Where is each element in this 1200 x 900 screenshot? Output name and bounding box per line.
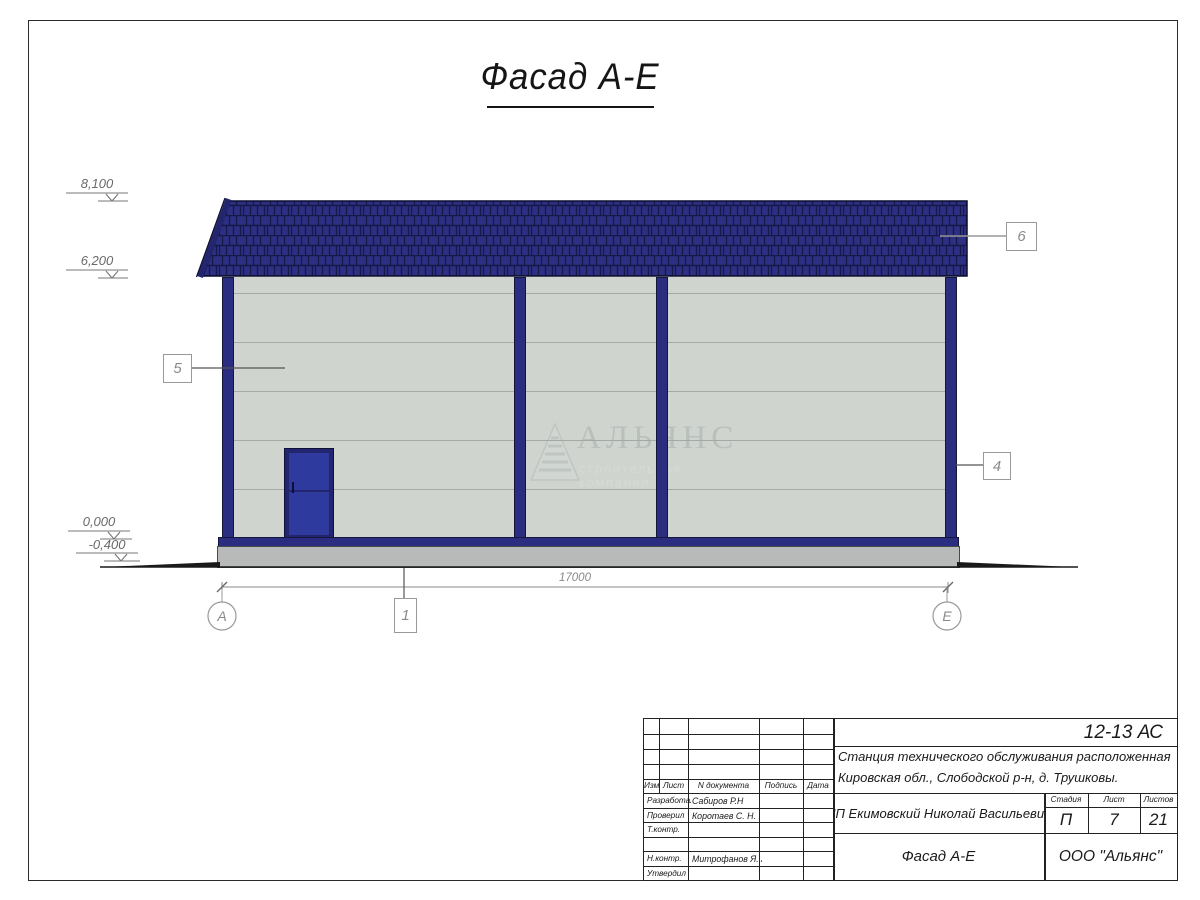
tb-col-doc: N документа <box>688 781 759 790</box>
callout-roof: 6 <box>1006 222 1037 251</box>
elevation-mark-zero: 0,000 <box>70 514 128 529</box>
axis-bubble-a: А <box>211 605 233 627</box>
tb-line <box>833 746 1177 747</box>
tb-client: ИП Екимовский Николай Васильевич <box>833 793 1044 833</box>
callout-corner: 4 <box>983 452 1011 480</box>
tb-stage-value: П <box>1044 807 1088 833</box>
tb-line <box>644 851 833 852</box>
tb-role: Разработал <box>644 796 691 805</box>
tb-sheet-value: 7 <box>1088 807 1140 833</box>
tb-name: Митрофанов Я. А. <box>689 854 762 864</box>
tb-doc-code: 12-13 АС <box>833 719 1163 746</box>
tb-sheet-name: Фасад А-Е <box>833 833 1044 880</box>
tb-role: Утвердил <box>644 869 691 878</box>
tb-line <box>644 822 833 823</box>
tb-stage-label: Стадия <box>1044 795 1088 804</box>
tb-line <box>644 837 833 838</box>
tb-col-date: Дата <box>803 781 833 790</box>
tb-project-line1: Станция технического обслуживания распол… <box>838 749 1174 764</box>
tb-col-list: Лист <box>659 781 688 790</box>
tb-line <box>644 808 833 809</box>
tb-sheets-value: 21 <box>1140 807 1177 833</box>
tb-line <box>644 764 833 765</box>
tb-col-izm: Изм. <box>644 781 659 790</box>
callout-plinth: 1 <box>394 598 417 633</box>
tb-sheet-label: Лист <box>1088 795 1140 804</box>
tb-role: Проверил <box>644 811 691 820</box>
tb-line <box>644 749 833 750</box>
tb-line <box>644 779 833 780</box>
drawing-sheet: Фасад А-Е АЛЬЯНС строительная компания <box>0 0 1200 900</box>
tb-line <box>803 719 804 880</box>
tb-name: Сабиров Р.Н <box>689 796 762 806</box>
tb-role: Т.контр. <box>644 825 691 834</box>
elevation-mark-ridge: 8,100 <box>68 176 126 191</box>
title-block: Изм. Лист N документа Подпись Дата Разра… <box>643 718 1178 881</box>
dimension-total: 17000 <box>540 572 610 584</box>
tb-line <box>644 734 833 735</box>
elevation-mark-ground: -0,400 <box>78 537 136 552</box>
elevation-mark-eave: 6,200 <box>68 253 126 268</box>
tb-line <box>644 866 833 867</box>
tb-name: Коротаев С. Н. <box>689 811 762 821</box>
callout-wall-panel: 5 <box>163 354 192 383</box>
axis-bubble-e: Е <box>936 605 958 627</box>
tb-col-sign: Подпись <box>759 781 803 790</box>
tb-project-line2: Кировская обл., Слободской р-н, д. Трушк… <box>838 770 1174 785</box>
tb-sheets-label: Листов <box>1140 795 1177 804</box>
tb-role: Н.контр. <box>644 854 691 863</box>
tb-company: ООО "Альянс" <box>1044 833 1177 880</box>
